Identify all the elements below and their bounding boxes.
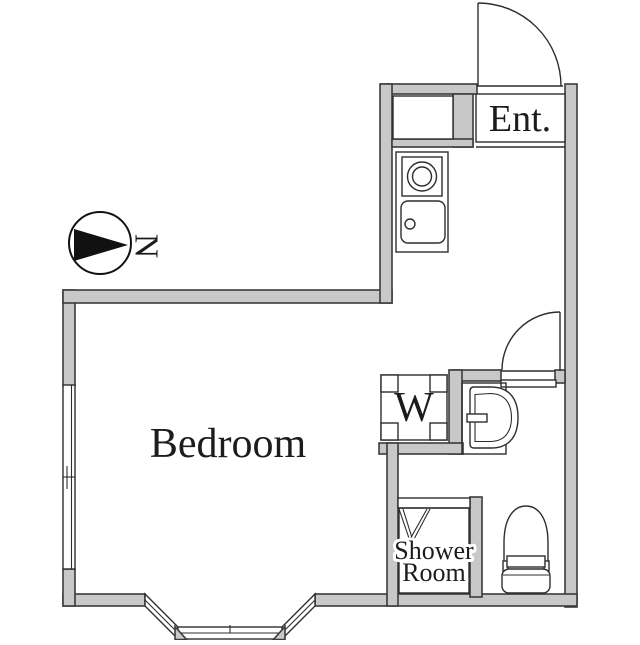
walls [63,84,577,607]
basin-faucet [467,414,487,422]
upper-cabinet-icon [393,96,453,139]
floor-plan-drawing: Ent. W [0,0,640,640]
kitchen-sink-icon [401,201,445,243]
shower-room-area: Shower Room [394,498,474,593]
kitchen-area [393,96,453,252]
entrance-door-icon [478,3,561,86]
compass: N [69,212,165,274]
entrance-label: Ent. [489,98,551,140]
bathroom-door-icon [501,312,560,387]
floor-plan: Ent. W [0,0,640,640]
compass-north-label: N [128,234,165,259]
washer-label: W [394,385,434,431]
washing-machine-icon: W [381,375,447,440]
entrance-area: Ent. [476,3,565,147]
toilet-icon [502,506,550,593]
bay-window-icon [145,594,315,640]
shower-door-track [398,498,470,508]
bedroom-label: Bedroom [150,421,307,467]
stove-icon [402,157,442,196]
left-window-icon [63,385,75,569]
shower-room-label-line2: Room [402,558,466,587]
wash-basin-icon [462,383,518,454]
